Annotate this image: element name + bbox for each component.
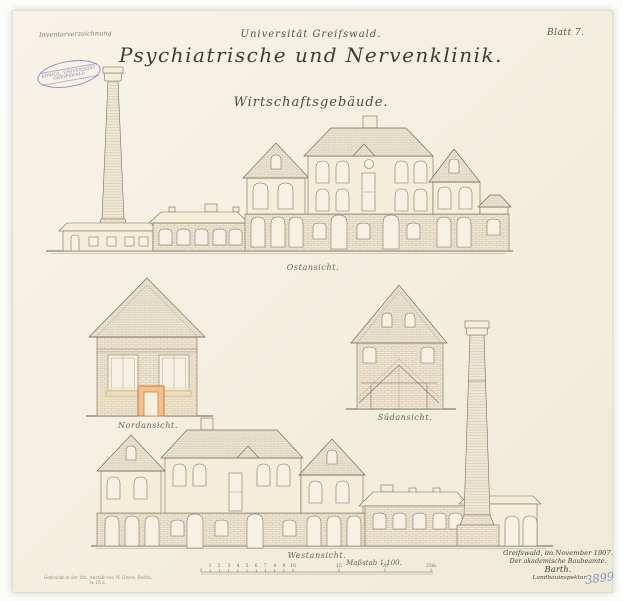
scale-label: Maßstab 1:100.	[346, 559, 402, 567]
scale-tick-label: 4	[237, 564, 240, 569]
scale-tick-label: 10	[290, 564, 296, 569]
signature-place-date: Greifswald, im November 1907.	[503, 549, 613, 557]
drawing-sheet: Inventarverzeichnung KÖNIGL. UNIVERSITÄT…	[12, 10, 613, 593]
printer-imprint: Gedruckt in der lith. Anstalt von W. Gre…	[33, 576, 163, 586]
scale-tick-label: 1	[209, 564, 212, 569]
caption-ostansicht: Ostansicht.	[287, 263, 339, 272]
elevation-nord-drawing	[86, 278, 213, 416]
caption-westansicht: Westansicht.	[288, 551, 347, 560]
scale-bar	[201, 569, 433, 575]
scale-tick-label: 8	[274, 564, 277, 569]
elevation-sued-drawing	[346, 285, 456, 409]
scale-tick-label: 7	[264, 564, 267, 569]
scale-tick-label: 20	[382, 564, 388, 569]
elevation-ost-drawing	[46, 67, 513, 254]
drawing-canvas	[13, 11, 612, 592]
caption-suedansicht: Südansicht.	[378, 413, 432, 422]
scanned-plan: Inventarverzeichnung KÖNIGL. UNIVERSITÄT…	[0, 0, 623, 601]
signature-rank: Landbauinspektor.	[533, 575, 588, 581]
scale-tick-label: 15	[336, 564, 342, 569]
caption-nordansicht: Nordansicht.	[118, 421, 178, 430]
scale-tick-label: 9	[283, 564, 286, 569]
scale-tick-label: 6	[255, 564, 258, 569]
signature-name: Barth.	[545, 565, 572, 575]
scale-tick-label: 5	[246, 564, 249, 569]
highlighted-doorway-detail	[138, 386, 164, 416]
scale-tick-label: 2	[218, 564, 221, 569]
signature-office: Der akademische Baubeamte.	[510, 557, 607, 565]
scale-tick-label: 25m	[426, 564, 436, 569]
scale-tick-label: 3	[228, 564, 231, 569]
